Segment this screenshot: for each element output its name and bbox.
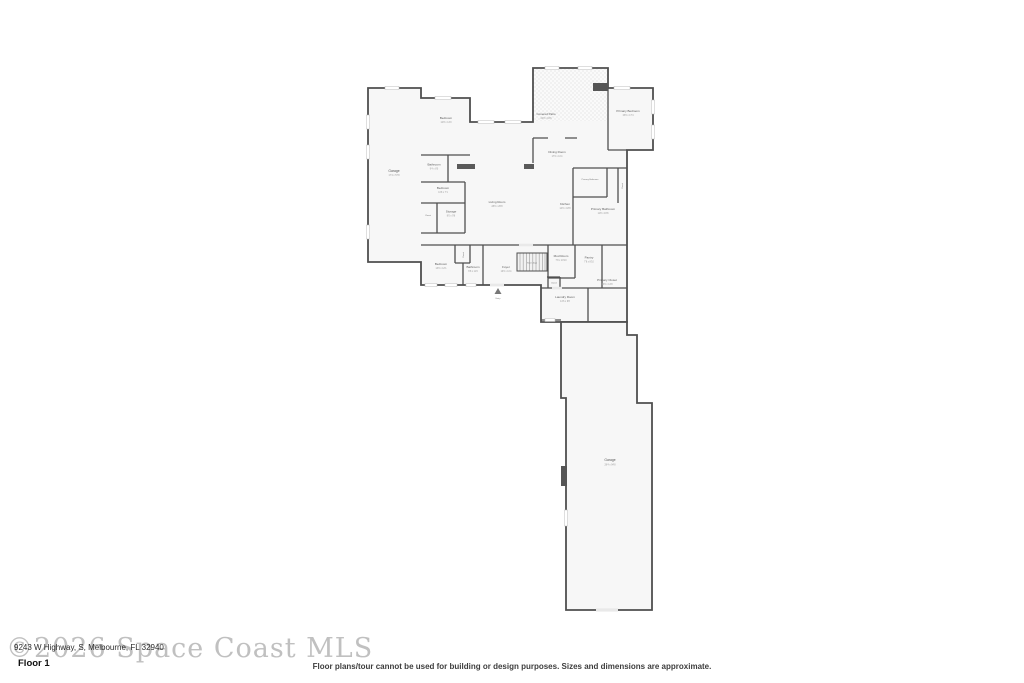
svg-text:Closet: Closet: [551, 282, 557, 285]
svg-text:9'4 x 8'0: 9'4 x 8'0: [430, 168, 439, 170]
garage-side-door: [561, 466, 567, 486]
svg-text:Pantry: Pantry: [585, 256, 594, 260]
svg-text:Closet: Closet: [425, 214, 431, 217]
svg-text:Mud Room: Mud Room: [554, 254, 569, 258]
room-label-bedroom-bottom: Bedroom 13'0 x 12'1: [435, 262, 448, 270]
svg-text:Stairs (Up): Stairs (Up): [527, 262, 537, 265]
property-address: 9243 W Highway, S, Melbourne, FL 32940: [14, 643, 164, 652]
room-label-stairs: Stairs (Up): [527, 262, 537, 265]
svg-text:12'8 x 14'0: 12'8 x 14'0: [441, 122, 453, 124]
room-label-closet-mid: Closet: [425, 214, 431, 217]
svg-text:16'0 x 14'8: 16'0 x 14'8: [602, 284, 614, 286]
svg-text:Dining Room: Dining Room: [548, 150, 566, 154]
svg-text:Primary Bathroom: Primary Bathroom: [582, 178, 599, 181]
svg-text:Closet: Closet: [621, 183, 624, 189]
counter-stub: [524, 164, 534, 169]
svg-text:28'0 x 26'8: 28'0 x 26'8: [492, 206, 504, 208]
svg-text:Storage: Storage: [446, 210, 457, 214]
svg-text:Garage: Garage: [604, 458, 615, 462]
patio-fixture: [593, 83, 608, 91]
room-label-kitchen: Kitchen 14'0 x 18'8: [560, 202, 572, 210]
svg-text:Bathroom: Bathroom: [427, 163, 441, 167]
svg-text:Bedroom: Bedroom: [440, 116, 453, 120]
svg-text:Covered Patio: Covered Patio: [536, 112, 555, 116]
svg-text:Bedroom: Bedroom: [435, 262, 448, 266]
svg-text:15'0 x 17'4: 15'0 x 17'4: [623, 115, 635, 117]
svg-text:Primary Bathroom: Primary Bathroom: [591, 207, 616, 211]
svg-text:11'8 x 7'1: 11'8 x 7'1: [438, 192, 448, 194]
counter-stub: [457, 164, 475, 169]
svg-text:Foyer: Foyer: [502, 265, 510, 269]
svg-text:Kitchen: Kitchen: [560, 202, 570, 206]
svg-text:17'4 x 57'8: 17'4 x 57'8: [389, 175, 401, 177]
svg-text:14'0 x 18'8: 14'0 x 18'8: [560, 208, 572, 210]
room-label-primary-bathroom-small: Primary Bathroom: [582, 178, 599, 181]
floor-plan: Garage 17'4 x 57'8 Bedroom 12'8 x 14'0 B…: [0, 0, 1024, 683]
svg-text:28'4 x 94'8: 28'4 x 94'8: [605, 465, 617, 467]
room-label-closet-right: Closet: [621, 183, 624, 189]
svg-text:14'6 x 9'8: 14'6 x 9'8: [560, 301, 570, 303]
svg-text:Primary Bedroom: Primary Bedroom: [616, 109, 640, 113]
room-label-bedroom-top: Bedroom 12'8 x 14'0: [440, 116, 453, 124]
svg-text:Entry: Entry: [496, 297, 502, 300]
entry-arrow-icon: [495, 288, 502, 294]
svg-text:Laundry Room: Laundry Room: [555, 295, 575, 299]
svg-text:Closet: Closet: [462, 252, 465, 258]
svg-text:Bathroom: Bathroom: [466, 265, 480, 269]
svg-text:Bedroom: Bedroom: [437, 186, 450, 190]
room-label-entry: Entry: [496, 297, 502, 300]
svg-text:17'0 x 11'4: 17'0 x 11'4: [552, 156, 564, 158]
svg-text:Garage: Garage: [388, 169, 399, 173]
room-label-pantry: Pantry 7'8 x 8'10: [584, 256, 594, 264]
svg-text:Primary Closet: Primary Closet: [597, 278, 617, 282]
svg-text:13'0 x 12'1: 13'0 x 12'1: [436, 268, 448, 270]
floor-plan-page: { "page": { "watermark": "©2026 Space Co…: [0, 0, 1024, 683]
svg-text:Living Room: Living Room: [489, 200, 506, 204]
room-label-storage: Storage 8'0 x 9'6: [446, 210, 457, 218]
disclaimer-text: Floor plans/tour cannot be used for buil…: [0, 662, 1024, 671]
room-label-closet-bottom: Closet: [462, 252, 465, 258]
room-label-closet-small: Closet: [551, 282, 557, 285]
svg-text:11'8 x 16'8: 11'8 x 16'8: [598, 213, 610, 215]
svg-text:7'8 x 10'10: 7'8 x 10'10: [556, 260, 568, 262]
svg-text:24'8 x 16'6: 24'8 x 16'6: [541, 118, 553, 120]
room-label-bedroom-mid: Bedroom 11'8 x 7'1: [437, 186, 450, 194]
svg-text:10'0 x 11'4: 10'0 x 11'4: [501, 271, 513, 273]
svg-text:8'0 x 9'6: 8'0 x 9'6: [447, 215, 456, 217]
svg-text:6'8 x 11'0: 6'8 x 11'0: [468, 271, 478, 273]
svg-text:7'8 x 8'10: 7'8 x 8'10: [584, 261, 594, 263]
